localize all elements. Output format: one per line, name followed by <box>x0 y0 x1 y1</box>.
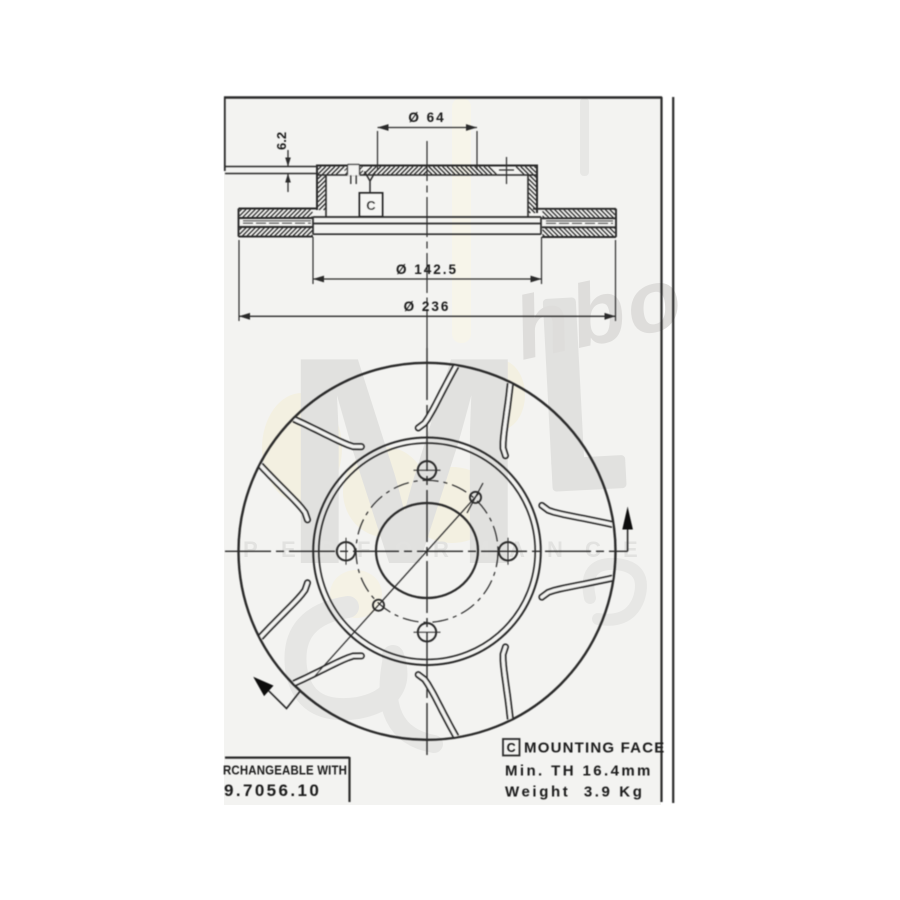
svg-text:N: N <box>547 537 563 562</box>
svg-text:O: O <box>395 537 412 562</box>
svg-text:M: M <box>471 537 489 562</box>
svg-text:RCHANGEABLE WITH: RCHANGEABLE WITH <box>223 763 347 778</box>
svg-text:R: R <box>319 537 335 562</box>
svg-text:E: E <box>623 537 638 562</box>
svg-text:P: P <box>243 537 258 562</box>
svg-text:9.7056.10: 9.7056.10 <box>224 781 321 800</box>
svg-text:Ø 142.5: Ø 142.5 <box>396 262 458 277</box>
svg-text:C: C <box>507 741 516 755</box>
svg-text:C: C <box>585 537 601 562</box>
svg-text:Weight 3.9 Kg: Weight 3.9 Kg <box>505 784 644 801</box>
svg-text:Min. TH 16.4mm: Min. TH 16.4mm <box>505 763 653 780</box>
svg-text:C: C <box>366 198 376 213</box>
svg-text:Ø 236: Ø 236 <box>404 299 451 314</box>
svg-text:Ø 64: Ø 64 <box>408 110 445 125</box>
svg-text:MOUNTING FACE: MOUNTING FACE <box>524 740 665 757</box>
svg-text:F: F <box>357 537 370 562</box>
svg-text:6.2: 6.2 <box>274 132 289 150</box>
svg-text:E: E <box>281 537 296 562</box>
